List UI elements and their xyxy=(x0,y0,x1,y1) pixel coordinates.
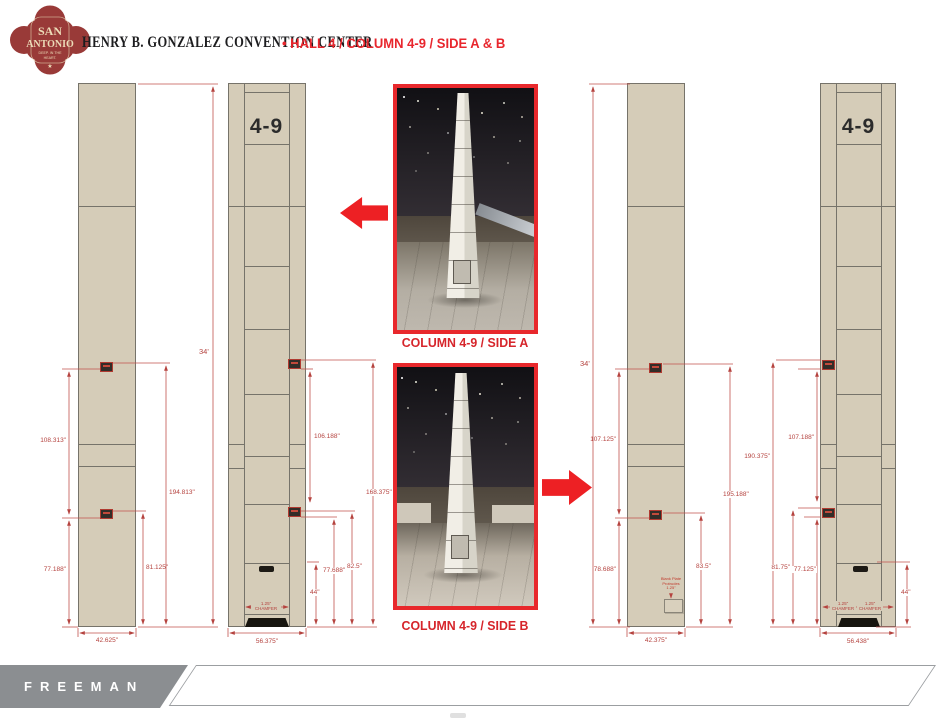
dim-label-col3-width: 42.375" xyxy=(638,637,674,644)
drawing-sheet: SAN ANTONIO DEEP. IN THE HEART. ★ HENRY … xyxy=(0,0,940,727)
ceiling-lights xyxy=(401,377,403,379)
dim-label-col3-lower-left: 78.688" xyxy=(590,566,616,573)
dim-label-col1-inner-right: 81.125" xyxy=(146,564,168,571)
dim-label-col2-chamfer: 1.25" CHAMFER xyxy=(251,601,281,611)
photo-a-scene xyxy=(397,88,534,330)
footer-outline-band xyxy=(169,665,936,706)
dim-label-col2-upper: 106.188" xyxy=(313,433,341,440)
dim-label-col4-full: 190.375" xyxy=(744,453,770,460)
chamfer-word: CHAMFER xyxy=(255,606,277,611)
far-wall-left xyxy=(397,503,431,523)
dim-label-col1-right: 194.813" xyxy=(169,489,195,496)
dim-label-overall-height-a: 34' xyxy=(199,348,209,355)
chamfer-word: CHAMFER xyxy=(859,606,881,611)
vent-plate-note: Blank Plate Protrudes 1.25" xyxy=(654,577,688,591)
dim-label-col3-inner-right: 83.5" xyxy=(695,563,712,570)
dim-label-col4-lower2: 77.125" xyxy=(789,566,817,573)
dim-label-col1-width: 42.625" xyxy=(89,637,125,644)
dim-label-col1-upper-left: 108.313" xyxy=(40,437,66,444)
column-access-panel xyxy=(451,535,469,559)
dim-label-col3-right: 195.188" xyxy=(722,491,750,498)
dim-label-col3-upper-left: 107.125" xyxy=(590,436,616,443)
photo-side-b xyxy=(393,363,538,610)
dim-label-col2-full: 168.375" xyxy=(365,489,393,496)
dim-label-col4-upper: 107.188" xyxy=(788,434,814,441)
dim-label-col2-lower: 77.688" xyxy=(322,567,346,574)
photo-b-caption: COLUMN 4-9 / SIDE B xyxy=(389,618,541,633)
dim-label-col4-width: 56.438" xyxy=(840,638,876,645)
dim-label-col1-lower-left: 77.188" xyxy=(40,566,66,573)
dim-label-col4-chamfer-right: 1.25" CHAMFER xyxy=(857,601,883,611)
freeman-logo: FREEMAN xyxy=(24,665,188,708)
dim-label-col4-lower: 81.75" xyxy=(763,564,791,571)
dim-label-col2-width: 56.375" xyxy=(249,638,285,645)
far-wall-right xyxy=(492,505,534,523)
footer-brand-bar: FREEMAN xyxy=(0,665,188,708)
page-footer-mark xyxy=(450,713,466,718)
note-line3: 1.25" xyxy=(666,585,675,590)
dim-label-overall-height-b: 34' xyxy=(580,360,590,367)
photo-b-scene xyxy=(397,367,534,606)
column-access-panel xyxy=(453,260,471,284)
dim-label-col2-lower2: 82.5" xyxy=(346,563,363,570)
dim-label-col2-base: 44" xyxy=(309,589,321,596)
chamfer-word: CHAMFER xyxy=(832,606,854,611)
dim-label-col4-chamfer-left: 1.25" CHAMFER xyxy=(830,601,856,611)
photo-side-a xyxy=(393,84,538,334)
ceiling-lights xyxy=(403,96,405,98)
photo-a-caption: COLUMN 4-9 / SIDE A xyxy=(389,335,541,350)
dim-label-col4-base: 44" xyxy=(900,589,912,596)
